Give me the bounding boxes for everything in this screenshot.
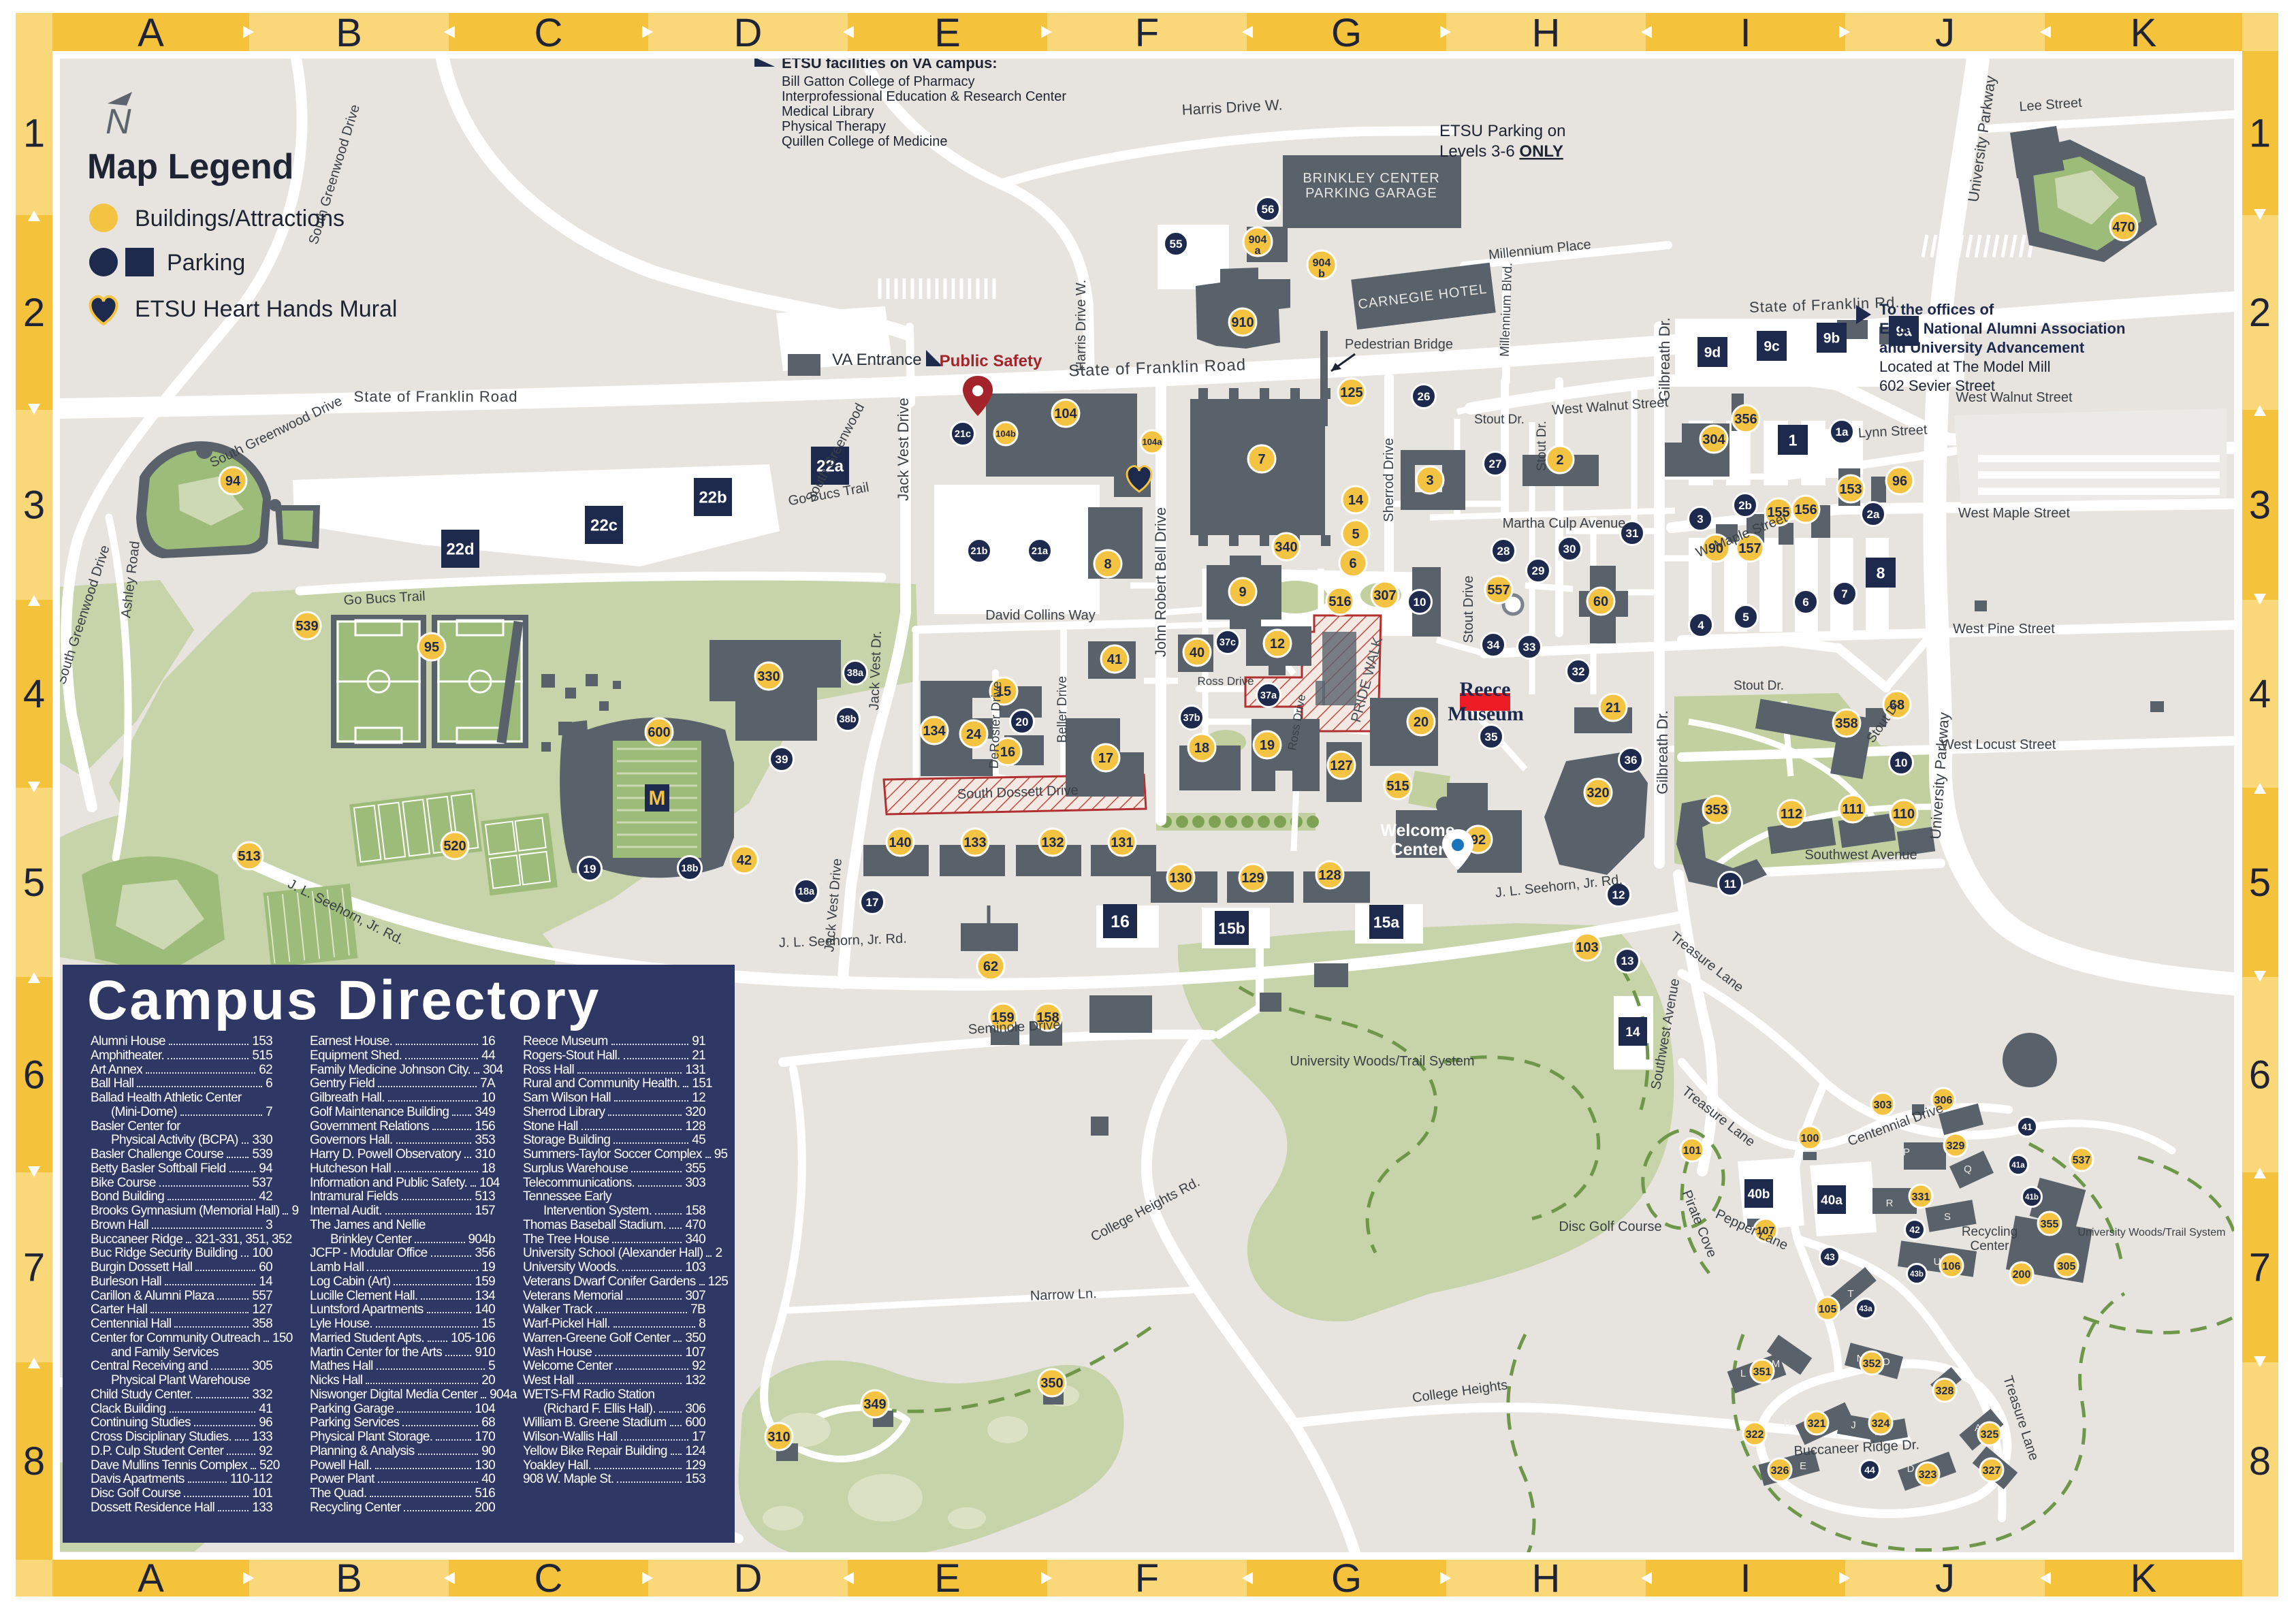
svg-text:b: b — [1318, 268, 1325, 280]
svg-text:904: 904 — [1249, 234, 1267, 246]
svg-text:C: C — [535, 1556, 563, 1601]
svg-text:Stout Dr.: Stout Dr. — [1535, 421, 1549, 471]
svg-text:I: I — [1740, 1556, 1751, 1601]
svg-text:106: 106 — [1943, 1261, 1961, 1272]
svg-text:E: E — [934, 1556, 961, 1601]
svg-text:104: 104 — [1054, 406, 1077, 421]
svg-text:9c: 9c — [1764, 339, 1780, 355]
svg-text:110: 110 — [1893, 807, 1915, 822]
svg-text:Public Safety: Public Safety — [940, 352, 1042, 370]
svg-text:J: J — [1935, 1556, 1955, 1601]
svg-text:26: 26 — [1418, 390, 1431, 403]
svg-text:16: 16 — [1000, 745, 1015, 760]
svg-text:H: H — [1784, 1417, 1791, 1429]
svg-text:Medical Library: Medical Library — [782, 104, 874, 119]
svg-text:A: A — [138, 1556, 164, 1601]
svg-text:43a: 43a — [1859, 1305, 1872, 1313]
svg-text:17: 17 — [866, 896, 879, 909]
svg-text:134: 134 — [923, 724, 946, 739]
svg-text:29: 29 — [1532, 564, 1545, 577]
svg-text:515: 515 — [1386, 779, 1409, 794]
svg-text:C: C — [535, 11, 563, 55]
svg-text:41a: 41a — [2011, 1161, 2025, 1170]
svg-text:112: 112 — [1781, 807, 1802, 822]
svg-text:Interprofessional Education &: Interprofessional Education & Research C… — [782, 89, 1066, 104]
svg-text:Quillen College of Medicine: Quillen College of Medicine — [782, 134, 947, 149]
svg-text:340: 340 — [1275, 540, 1297, 555]
svg-text:J: J — [1851, 1419, 1856, 1431]
svg-text:D: D — [734, 11, 763, 55]
svg-text:904: 904 — [1313, 257, 1331, 269]
svg-text:40b: 40b — [1748, 1187, 1770, 1202]
svg-text:E: E — [934, 11, 961, 55]
svg-text:8: 8 — [2249, 1439, 2271, 1483]
svg-text:352: 352 — [1863, 1358, 1881, 1370]
svg-text:326: 326 — [1771, 1465, 1789, 1477]
svg-text:J: J — [1935, 11, 1955, 55]
svg-text:42: 42 — [737, 853, 752, 868]
svg-text:2: 2 — [23, 291, 45, 335]
svg-text:95: 95 — [424, 640, 439, 655]
svg-text:4: 4 — [1697, 619, 1704, 632]
svg-text:355: 355 — [2041, 1219, 2059, 1230]
svg-text:Martha Culp Avenue: Martha Culp Avenue — [1503, 516, 1626, 531]
svg-text:520: 520 — [443, 839, 466, 854]
svg-text:15a: 15a — [1373, 913, 1400, 931]
svg-text:16: 16 — [1111, 912, 1130, 931]
svg-text:41: 41 — [2022, 1121, 2032, 1132]
svg-text:19: 19 — [1260, 738, 1275, 753]
svg-text:310: 310 — [767, 1430, 790, 1445]
svg-text:Harris Drive W.: Harris Drive W. — [1074, 280, 1089, 371]
svg-text:John Robert Bell Drive: John Robert Bell Drive — [1152, 507, 1169, 657]
svg-text:41b: 41b — [2025, 1193, 2039, 1202]
svg-text:321: 321 — [1808, 1418, 1826, 1430]
svg-text:27: 27 — [1489, 458, 1502, 470]
svg-text:University Woods/Trail System: University Woods/Trail System — [2078, 1227, 2226, 1238]
svg-text:Bill Gatton College of Pharmac: Bill Gatton College of Pharmacy — [782, 74, 974, 89]
svg-text:B: B — [336, 1556, 362, 1601]
svg-text:18: 18 — [1194, 741, 1209, 756]
svg-text:Welcome: Welcome — [1380, 821, 1454, 840]
svg-text:9: 9 — [1239, 585, 1246, 600]
svg-text:42: 42 — [1909, 1224, 1920, 1235]
svg-text:7: 7 — [2249, 1246, 2271, 1290]
svg-text:323: 323 — [1919, 1469, 1937, 1481]
svg-text:L: L — [1740, 1368, 1746, 1379]
svg-text:14: 14 — [1625, 1025, 1640, 1040]
svg-text:2b: 2b — [1738, 499, 1752, 512]
svg-text:8: 8 — [23, 1439, 45, 1483]
svg-text:G: G — [1331, 1556, 1362, 1601]
svg-text:Located at The Model Mill: Located at The Model Mill — [1879, 358, 2051, 375]
svg-text:F: F — [1135, 11, 1159, 55]
svg-text:105: 105 — [1819, 1304, 1837, 1315]
svg-text:State of Franklin Road: State of Franklin Road — [354, 388, 518, 405]
svg-text:Center: Center — [1970, 1239, 2009, 1253]
svg-text:21a: 21a — [1032, 546, 1049, 557]
svg-text:Museum: Museum — [1448, 703, 1524, 725]
svg-text:10: 10 — [1895, 756, 1908, 769]
svg-text:6: 6 — [1349, 556, 1356, 571]
svg-text:I: I — [1740, 11, 1751, 55]
svg-text:P: P — [1903, 1146, 1910, 1158]
svg-text:21b: 21b — [971, 546, 988, 557]
svg-text:43: 43 — [1824, 1251, 1835, 1262]
svg-text:18a: 18a — [798, 886, 815, 897]
svg-text:9b: 9b — [1823, 331, 1840, 347]
svg-text:7: 7 — [1841, 588, 1847, 600]
svg-text:a: a — [1255, 245, 1261, 257]
svg-text:96: 96 — [1892, 474, 1907, 489]
svg-text:21: 21 — [1606, 701, 1621, 716]
svg-text:38a: 38a — [847, 668, 864, 679]
svg-text:41: 41 — [1107, 652, 1122, 667]
svg-text:94: 94 — [225, 474, 241, 489]
svg-text:N: N — [106, 102, 131, 142]
svg-text:103: 103 — [1576, 940, 1598, 955]
svg-text:130: 130 — [1169, 871, 1192, 886]
svg-text:32: 32 — [1572, 665, 1585, 678]
svg-text:ETSU Heart Hands Mural: ETSU Heart Hands Mural — [135, 296, 397, 322]
svg-text:Sherrod Drive: Sherrod Drive — [1382, 438, 1397, 522]
svg-text:Physical Therapy: Physical Therapy — [782, 119, 886, 134]
svg-text:33: 33 — [1523, 641, 1536, 654]
svg-text:2: 2 — [1556, 453, 1563, 468]
svg-text:349: 349 — [863, 1397, 886, 1412]
svg-text:104b: 104b — [995, 429, 1016, 439]
svg-text:H: H — [1532, 11, 1561, 55]
svg-text:ETSU Parking on: ETSU Parking on — [1439, 122, 1565, 140]
svg-text:200: 200 — [2013, 1269, 2031, 1281]
svg-text:129: 129 — [1241, 871, 1264, 886]
svg-text:557: 557 — [1487, 583, 1510, 598]
svg-text:20: 20 — [1414, 715, 1429, 730]
svg-text:35: 35 — [1485, 731, 1498, 743]
svg-text:1: 1 — [2249, 112, 2271, 156]
svg-text:and University Advancement: and University Advancement — [1879, 339, 2085, 356]
svg-text:5: 5 — [2249, 861, 2271, 905]
svg-text:303: 303 — [1874, 1100, 1892, 1111]
svg-text:6: 6 — [2249, 1053, 2271, 1097]
svg-text:156: 156 — [1794, 502, 1817, 517]
svg-text:3: 3 — [23, 483, 45, 528]
svg-text:12: 12 — [1612, 888, 1625, 901]
svg-text:111: 111 — [1842, 802, 1863, 817]
svg-text:M: M — [649, 787, 666, 809]
svg-text:330: 330 — [757, 669, 780, 684]
svg-text:10: 10 — [1414, 596, 1426, 609]
svg-text:304: 304 — [1702, 432, 1725, 447]
svg-text:West Locust Street: West Locust Street — [1941, 737, 2056, 752]
svg-text:153: 153 — [1839, 482, 1862, 497]
svg-text:3: 3 — [2249, 483, 2271, 528]
svg-text:327: 327 — [1983, 1465, 2001, 1477]
svg-text:351: 351 — [1753, 1366, 1772, 1378]
svg-text:Gilbreath Dr.: Gilbreath Dr. — [1656, 317, 1673, 402]
svg-text:22d: 22d — [446, 541, 474, 559]
svg-text:329: 329 — [1947, 1140, 1965, 1152]
svg-text:K: K — [2131, 1556, 2157, 1601]
svg-text:5: 5 — [1742, 611, 1749, 624]
svg-text:17: 17 — [1098, 751, 1113, 766]
svg-text:Pedestrian Bridge: Pedestrian Bridge — [1345, 337, 1453, 352]
svg-text:West Maple Street: West Maple Street — [1958, 506, 2071, 521]
svg-text:40: 40 — [1190, 645, 1205, 660]
svg-text:516: 516 — [1328, 594, 1351, 609]
svg-text:7: 7 — [1258, 452, 1265, 467]
svg-text:62: 62 — [983, 959, 998, 974]
svg-text:910: 910 — [1231, 315, 1254, 330]
svg-text:Levels 3-6 ONLY: Levels 3-6 ONLY — [1439, 142, 1563, 161]
svg-text:T: T — [1847, 1288, 1853, 1300]
svg-text:5: 5 — [1352, 527, 1359, 542]
svg-text:Narrow Ln.: Narrow Ln. — [1030, 1286, 1098, 1303]
svg-text:PARKING GARAGE: PARKING GARAGE — [1305, 186, 1437, 201]
svg-text:VA Entrance: VA Entrance — [832, 351, 922, 369]
svg-text:40a: 40a — [1821, 1193, 1843, 1208]
svg-text:127: 127 — [1330, 758, 1352, 773]
svg-text:55: 55 — [1170, 238, 1183, 251]
svg-text:3: 3 — [1426, 473, 1433, 488]
svg-text:12: 12 — [1270, 637, 1285, 652]
svg-text:356: 356 — [1734, 412, 1757, 427]
svg-text:322: 322 — [1746, 1429, 1764, 1441]
svg-text:D: D — [1907, 1463, 1915, 1475]
svg-text:13: 13 — [1621, 955, 1634, 967]
svg-text:131: 131 — [1111, 835, 1133, 850]
svg-text:307: 307 — [1373, 588, 1396, 603]
svg-text:7: 7 — [23, 1246, 45, 1290]
svg-text:37b: 37b — [1183, 713, 1200, 724]
svg-text:44: 44 — [1864, 1464, 1875, 1475]
svg-text:Stout Dr.: Stout Dr. — [1734, 679, 1784, 693]
svg-text:1: 1 — [23, 112, 45, 156]
svg-text:37a: 37a — [1260, 690, 1277, 701]
svg-text:9d: 9d — [1704, 345, 1721, 361]
svg-text:34: 34 — [1487, 639, 1500, 652]
svg-text:Stout Drive: Stout Drive — [1461, 576, 1476, 643]
svg-text:Buildings/Attractions: Buildings/Attractions — [135, 206, 345, 231]
svg-text:ETSU facilities on VA campus:: ETSU facilities on VA campus: — [782, 54, 998, 71]
svg-text:157: 157 — [1738, 541, 1761, 556]
svg-text:104a: 104a — [1143, 437, 1163, 447]
svg-text:Parking: Parking — [167, 250, 245, 276]
svg-text:100: 100 — [1801, 1133, 1819, 1144]
svg-text:G: G — [1331, 11, 1362, 55]
svg-text:11: 11 — [1724, 878, 1736, 891]
svg-text:320: 320 — [1587, 786, 1609, 801]
svg-text:S: S — [1944, 1211, 1951, 1223]
svg-text:38b: 38b — [840, 714, 857, 725]
svg-text:Stout Dr.: Stout Dr. — [1474, 413, 1525, 427]
svg-text:36: 36 — [1625, 754, 1638, 767]
svg-text:Q: Q — [1964, 1164, 1972, 1175]
svg-text:30: 30 — [1563, 543, 1576, 556]
svg-text:602 Sevier Street: 602 Sevier Street — [1879, 377, 1995, 394]
svg-text:350: 350 — [1040, 1376, 1063, 1391]
svg-text:39: 39 — [776, 753, 788, 766]
svg-text:31: 31 — [1626, 527, 1639, 540]
svg-text:37c: 37c — [1219, 637, 1236, 648]
svg-text:21c: 21c — [955, 429, 971, 440]
svg-text:Recycling: Recycling — [1962, 1225, 2018, 1239]
svg-text:539: 539 — [296, 619, 318, 634]
svg-text:H: H — [1532, 1556, 1561, 1601]
svg-text:8: 8 — [1877, 564, 1885, 581]
svg-text:BRINKLEY CENTER: BRINKLEY CENTER — [1303, 171, 1439, 186]
svg-text:Jack Vest Dr.: Jack Vest Dr. — [867, 630, 884, 710]
svg-text:6: 6 — [1802, 596, 1808, 609]
svg-text:1a: 1a — [1836, 426, 1849, 438]
svg-text:Reece: Reece — [1460, 678, 1511, 701]
svg-text:56: 56 — [1262, 203, 1275, 216]
svg-text:5: 5 — [23, 861, 45, 905]
svg-text:324: 324 — [1872, 1418, 1890, 1430]
svg-text:513: 513 — [238, 849, 260, 864]
svg-text:2a: 2a — [1867, 508, 1880, 521]
svg-text:D: D — [734, 1556, 763, 1601]
svg-text:6: 6 — [23, 1053, 45, 1097]
svg-text:600: 600 — [648, 725, 670, 740]
svg-text:305: 305 — [2058, 1261, 2076, 1272]
svg-text:325: 325 — [1981, 1429, 1999, 1441]
svg-text:E: E — [1800, 1460, 1806, 1472]
svg-text:University Woods/Trail System: University Woods/Trail System — [1290, 1054, 1474, 1069]
svg-text:David Collins Way: David Collins Way — [985, 608, 1096, 623]
svg-text:Disc Golf Course: Disc Golf Course — [1559, 1219, 1661, 1234]
svg-text:R: R — [1886, 1198, 1894, 1209]
svg-text:331: 331 — [1912, 1191, 1930, 1203]
svg-text:60: 60 — [1593, 594, 1608, 609]
svg-text:Center: Center — [1390, 840, 1444, 859]
svg-text:2: 2 — [2249, 291, 2271, 335]
svg-text:B: B — [336, 11, 362, 55]
svg-text:4: 4 — [23, 672, 45, 716]
svg-text:20: 20 — [1016, 716, 1029, 728]
svg-text:K: K — [2131, 11, 2157, 55]
svg-text:14: 14 — [1348, 493, 1364, 508]
svg-text:Map Legend: Map Legend — [87, 147, 293, 187]
svg-text:353: 353 — [1705, 803, 1727, 818]
svg-text:24: 24 — [966, 727, 982, 742]
svg-text:3: 3 — [1697, 513, 1703, 526]
svg-text:Beller Drive: Beller Drive — [1055, 676, 1070, 743]
svg-text:Ross Drive: Ross Drive — [1197, 675, 1254, 688]
svg-text:470: 470 — [2112, 220, 2135, 235]
svg-text:328: 328 — [1936, 1385, 1954, 1397]
svg-text:133: 133 — [963, 835, 986, 850]
svg-text:101: 101 — [1683, 1145, 1702, 1157]
svg-text:F: F — [1135, 1556, 1159, 1601]
svg-text:43b: 43b — [1910, 1270, 1924, 1279]
svg-text:18b: 18b — [682, 863, 699, 874]
svg-text:15b: 15b — [1218, 919, 1245, 937]
svg-text:140: 140 — [889, 835, 911, 850]
svg-text:Southwest Avenue: Southwest Avenue — [1804, 848, 1917, 863]
svg-text:8: 8 — [1104, 557, 1111, 572]
svg-text:1: 1 — [1789, 431, 1798, 449]
svg-text:To the offices of: To the offices of — [1879, 301, 1994, 318]
svg-text:132: 132 — [1041, 835, 1064, 850]
svg-text:Gilbreath Dr.: Gilbreath Dr. — [1654, 710, 1671, 795]
svg-text:22b: 22b — [699, 489, 727, 507]
svg-text:ETSU National Alumni Associati: ETSU National Alumni Association — [1879, 320, 2125, 337]
svg-text:Jack Vest Drive: Jack Vest Drive — [895, 398, 912, 501]
svg-text:125: 125 — [1340, 385, 1362, 400]
svg-text:A: A — [138, 11, 164, 55]
svg-text:22c: 22c — [590, 517, 618, 535]
svg-text:358: 358 — [1835, 716, 1857, 731]
svg-text:4: 4 — [2249, 672, 2271, 716]
svg-text:19: 19 — [584, 863, 596, 876]
svg-text:128: 128 — [1318, 868, 1341, 883]
svg-text:DeRosier Drive: DeRosier Drive — [987, 681, 1004, 769]
svg-text:West Pine Street: West Pine Street — [1953, 622, 2055, 637]
svg-text:28: 28 — [1497, 545, 1510, 558]
svg-text:537: 537 — [2073, 1155, 2091, 1166]
